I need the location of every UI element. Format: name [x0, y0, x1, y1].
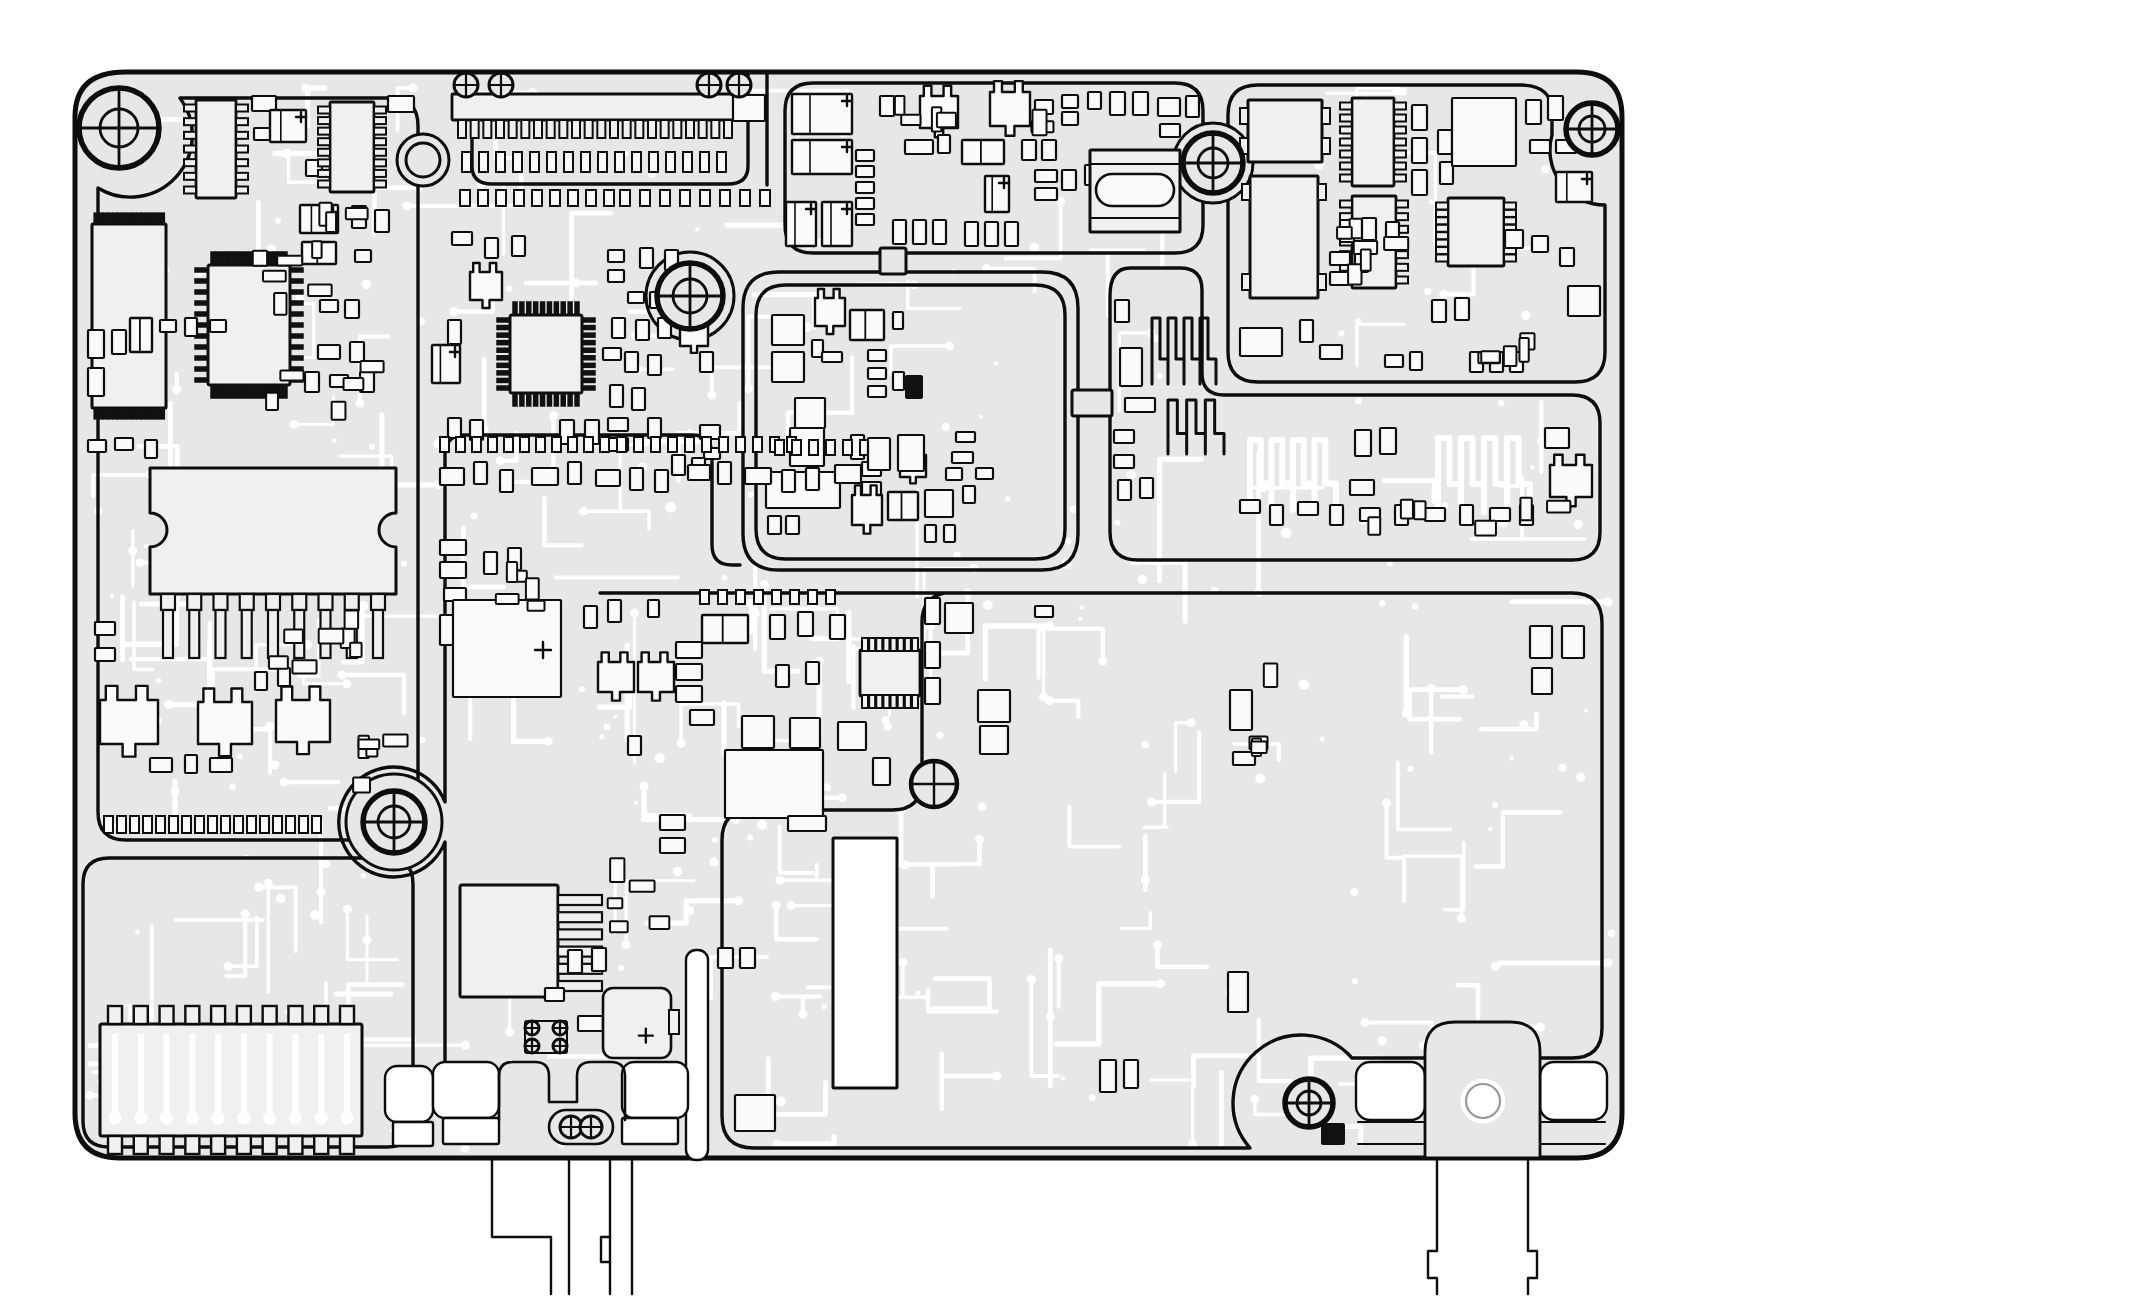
pcb-illustration-page — [0, 0, 2154, 1297]
pcb-technical-drawing — [0, 0, 2154, 1297]
